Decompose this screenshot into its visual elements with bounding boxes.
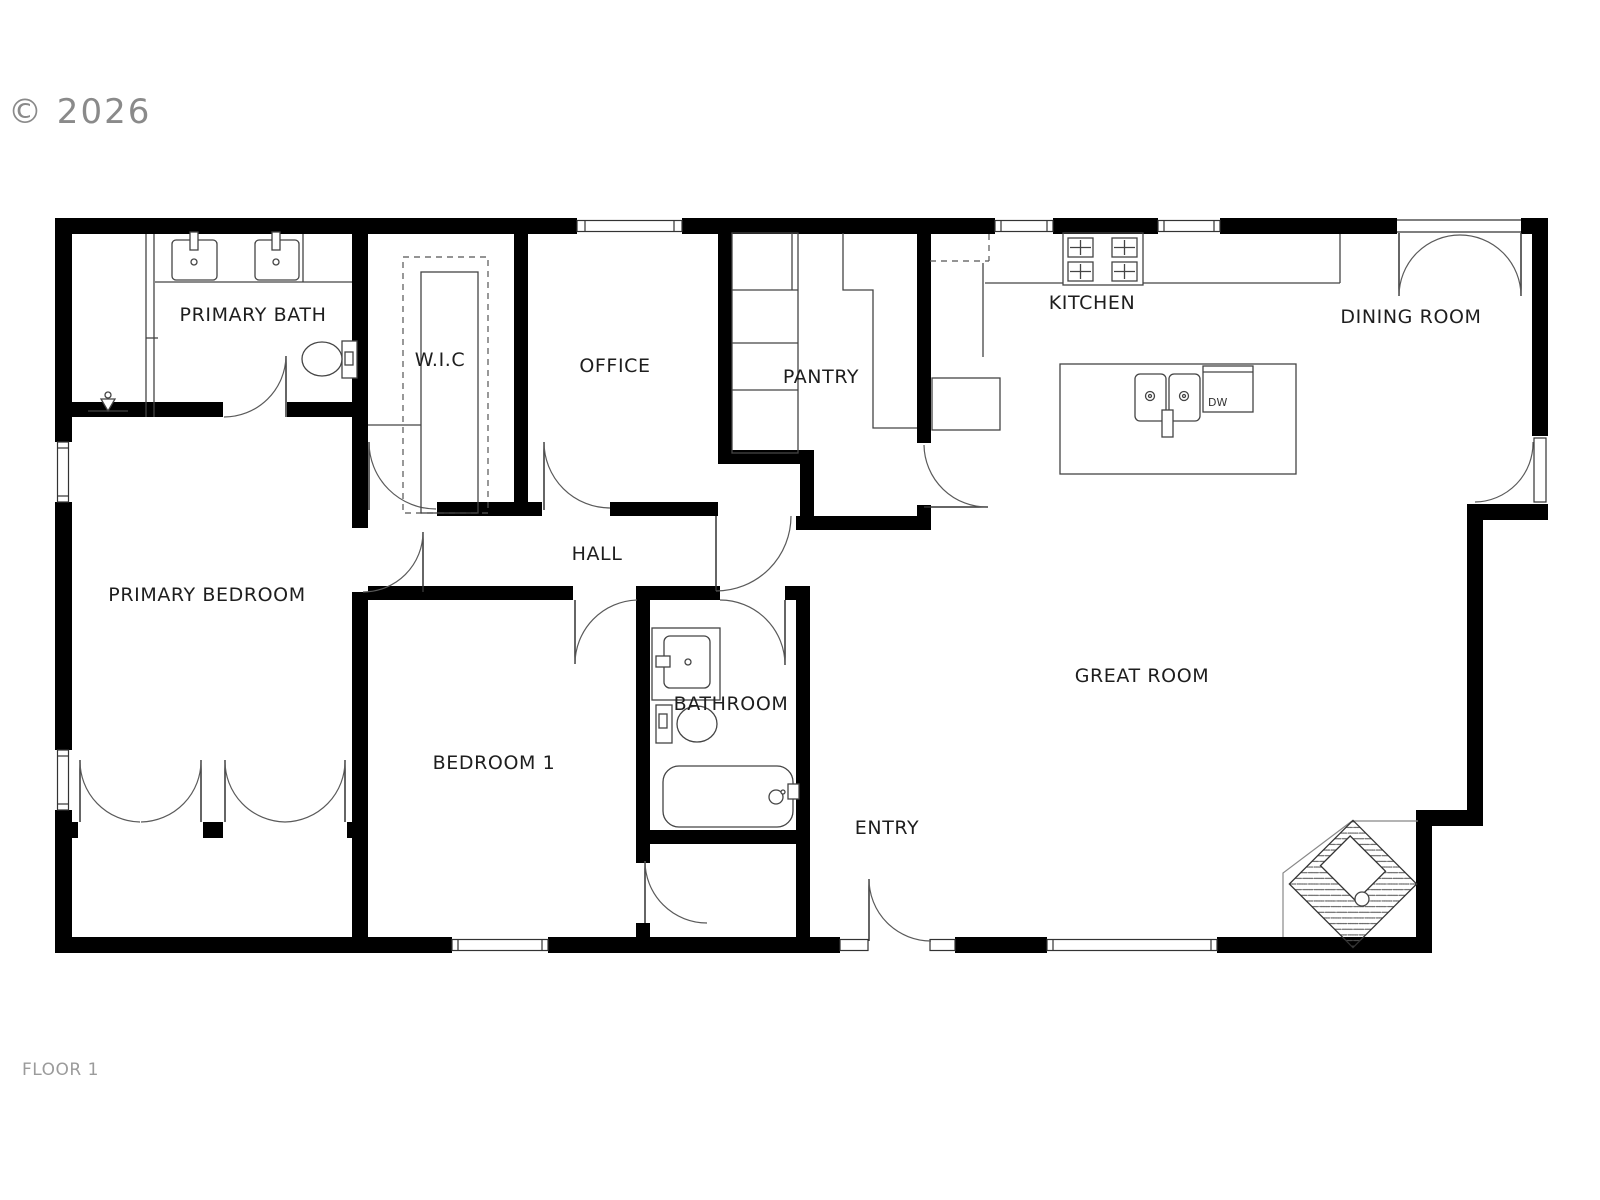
entry-label: ENTRY bbox=[855, 817, 919, 839]
office-door bbox=[544, 442, 610, 510]
toilet-icon bbox=[302, 341, 357, 378]
primary-bath-label: PRIMARY BATH bbox=[180, 304, 327, 326]
kitchen-window-right bbox=[1158, 221, 1220, 232]
bedroom1-door bbox=[575, 600, 637, 664]
primary-bedroom-french-doors-left bbox=[80, 760, 201, 822]
primary-bedroom-french-doors-right bbox=[225, 760, 345, 822]
dining-side-door bbox=[1475, 438, 1546, 502]
dining-french-doors bbox=[1399, 233, 1521, 296]
primary-bedroom-label: PRIMARY BEDROOM bbox=[108, 584, 305, 606]
pantry-counter bbox=[843, 233, 917, 428]
floorplan-page: © 2026 FLOOR 1 bbox=[0, 0, 1600, 1200]
entry-front-door bbox=[869, 879, 931, 941]
office-label: OFFICE bbox=[579, 355, 650, 377]
cooktop-icon bbox=[1063, 233, 1143, 285]
great-room-window bbox=[1047, 940, 1217, 951]
pantry-door bbox=[716, 516, 791, 591]
bathroom-label: BATHROOM bbox=[674, 693, 789, 715]
dishwasher-icon: DW bbox=[1203, 366, 1253, 412]
primary-bedroom-door bbox=[363, 532, 423, 592]
floorplan-drawing: DW bbox=[0, 0, 1600, 1200]
bathroom-fixtures bbox=[652, 628, 799, 827]
kitchen-label: KITCHEN bbox=[1049, 292, 1136, 314]
dishwasher-label: DW bbox=[1208, 396, 1227, 409]
hall-label: HALL bbox=[572, 543, 623, 565]
kitchen-fixtures: DW bbox=[930, 233, 1340, 474]
bathroom-door bbox=[720, 600, 785, 665]
kitchen-island: DW bbox=[1060, 364, 1296, 474]
office-window bbox=[577, 221, 682, 232]
island-double-sink-icon bbox=[1135, 374, 1200, 437]
bathtub-icon bbox=[663, 766, 799, 827]
double-sink-icon bbox=[172, 232, 299, 280]
bedroom-window-upper bbox=[58, 442, 69, 502]
bedroom1-label: BEDROOM 1 bbox=[433, 752, 556, 774]
bedroom1-closet-door bbox=[645, 861, 707, 923]
pantry-label: PANTRY bbox=[783, 366, 859, 388]
refrigerator-icon bbox=[932, 378, 1000, 430]
pantry-shelving bbox=[732, 233, 917, 453]
dining-room-label: DINING ROOM bbox=[1340, 306, 1481, 328]
kitchen-door bbox=[924, 445, 988, 507]
kitchen-window-left bbox=[995, 221, 1053, 232]
fireplace bbox=[1283, 820, 1418, 947]
bedroom-window-lower bbox=[58, 750, 69, 810]
bedroom1-window bbox=[452, 940, 548, 951]
fireplace-icon bbox=[1289, 820, 1416, 947]
wic-closet-system bbox=[368, 257, 488, 513]
wic-label: W.I.C bbox=[415, 349, 466, 371]
great-room-label: GREAT ROOM bbox=[1075, 665, 1210, 687]
bathroom-vanity-sink-icon bbox=[652, 628, 720, 700]
